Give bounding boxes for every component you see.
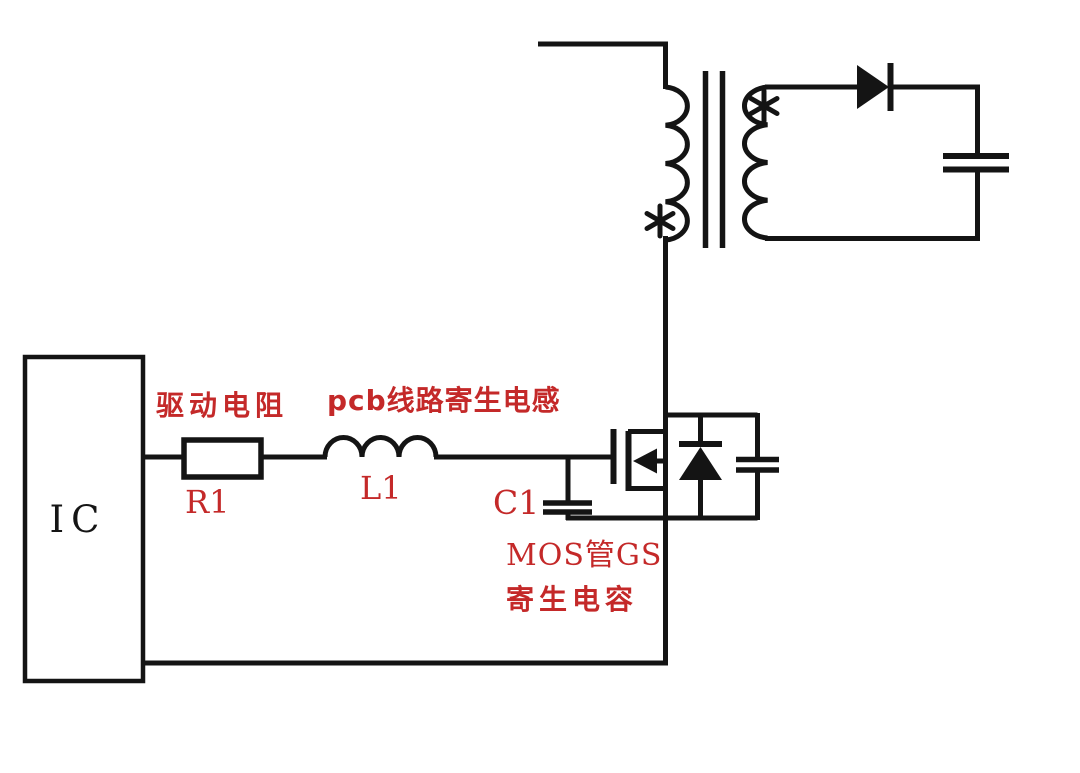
ic-label: IC xyxy=(42,501,114,538)
mos-gs-cap-label-line1: MOS管GS xyxy=(506,541,662,571)
polarity-star-primary xyxy=(647,206,673,236)
l1-ref-label: L1 xyxy=(360,472,402,504)
output-capacitor xyxy=(943,156,1009,170)
c1-ref-label: C1 xyxy=(493,486,539,519)
schematic-canvas: IC 驱动电阻 pcb线路寄生电感 R1 L1 C1 MOS管GS 寄生电容 xyxy=(0,0,1080,773)
polarity-star-secondary xyxy=(751,91,777,121)
capacitor-c1 xyxy=(543,455,592,520)
drive-resistor-label: 驱动电阻 xyxy=(156,392,288,420)
pcb-inductance-label: pcb线路寄生电感 xyxy=(327,387,561,415)
mosfet-arrow xyxy=(633,449,657,474)
output-capacitance-cap xyxy=(736,413,779,520)
primary-supply-wire xyxy=(538,44,666,89)
mos-gs-cap-label-line2: 寄生电容 xyxy=(506,586,638,614)
output-diode xyxy=(857,63,891,111)
mosfet-symbol xyxy=(614,429,669,491)
inductor-l1 xyxy=(325,438,436,458)
secondary-output-wires xyxy=(765,87,980,241)
body-diode xyxy=(679,413,722,520)
r1-ref-label: R1 xyxy=(185,486,229,518)
resistor-r1 xyxy=(184,440,261,477)
